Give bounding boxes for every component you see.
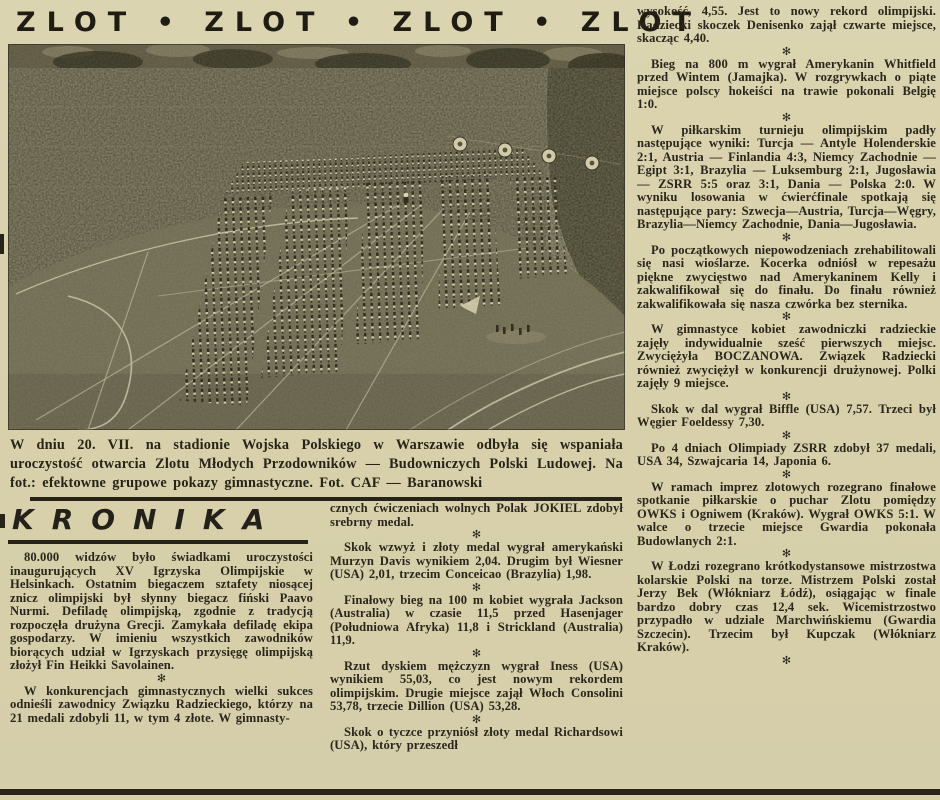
stadium-photo-graphic [8,44,625,430]
paragraph: Bieg na 800 m wygrał Amerykanin Whitfiel… [637,58,936,112]
newspaper-page: ZLOT • ZLOT • ZLOT • ZLOT [0,0,940,800]
scan-edge-artifact [0,514,5,528]
paragraph: cznych ćwiczeniach wolnych Polak JOKIEL … [330,502,623,529]
section-title-rule [8,540,308,544]
caption-rule [30,497,622,501]
paragraph: W ramach imprez zlotowych rozegrano fina… [637,481,936,549]
paragraph: W konkurencjach gimnastycznych wielki su… [10,685,313,726]
paragraph: W piłkarskim turnieju olimpijskim padły … [637,124,936,232]
photo-caption: W dniu 20. VII. na stadionie Wojska Pols… [10,436,623,493]
paragraph-separator: ✻ [637,469,936,481]
paragraph: Po początkowych niepowodzeniach zrehabil… [637,244,936,312]
paragraph: W gimnastyce kobiet zawodniczki radzieck… [637,323,936,391]
paragraph: Skok w dal wygrał Biffle (USA) 7,57. Trz… [637,403,936,430]
paragraph-separator: ✻ [637,430,936,442]
paragraph: Skok wzwyż i złoty medal wygrał amerykań… [330,541,623,582]
paragraph-separator: ✻ [637,112,936,124]
scan-edge-artifact [0,234,4,254]
paragraph: wysokość, 4,55. Jest to nowy rekord olim… [637,5,936,46]
paragraph-separator: ✻ [330,582,623,594]
paragraph: Skok o tyczce przyniósł złoty medal Rich… [330,726,623,753]
paragraph: W Łodzi rozegrano krótkodystansowe mistr… [637,560,936,655]
paragraph: 80.000 widzów było świadkami uroczystośc… [10,551,313,673]
paragraph-separator: ✻ [10,673,313,685]
column-left: 80.000 widzów było świadkami uroczystośc… [10,551,313,785]
paragraph-separator: ✻ [637,232,936,244]
paragraph-separator: ✻ [637,46,936,58]
bottom-rule [0,789,940,795]
column-middle: cznych ćwiczeniach wolnych Polak JOKIEL … [330,502,623,785]
paragraph: Finałowy bieg na 100 m kobiet wygrała Ja… [330,594,623,648]
paragraph-separator: ✻ [330,648,623,660]
section-title: KRONIKA [12,503,312,537]
masthead-title: ZLOT • ZLOT • ZLOT • ZLOT [16,6,622,42]
stadium-photo [8,44,625,430]
paragraph: Po 4 dniach Olimpiady ZSRR zdobył 37 med… [637,442,936,469]
column-right: wysokość, 4,55. Jest to nowy rekord olim… [637,5,936,789]
paragraph-separator: ✻ [330,714,623,726]
paragraph-separator: ✻ [637,655,936,667]
paragraph-separator: ✻ [637,391,936,403]
paragraph: Rzut dyskiem mężczyzn wygrał Iness (USA)… [330,660,623,714]
